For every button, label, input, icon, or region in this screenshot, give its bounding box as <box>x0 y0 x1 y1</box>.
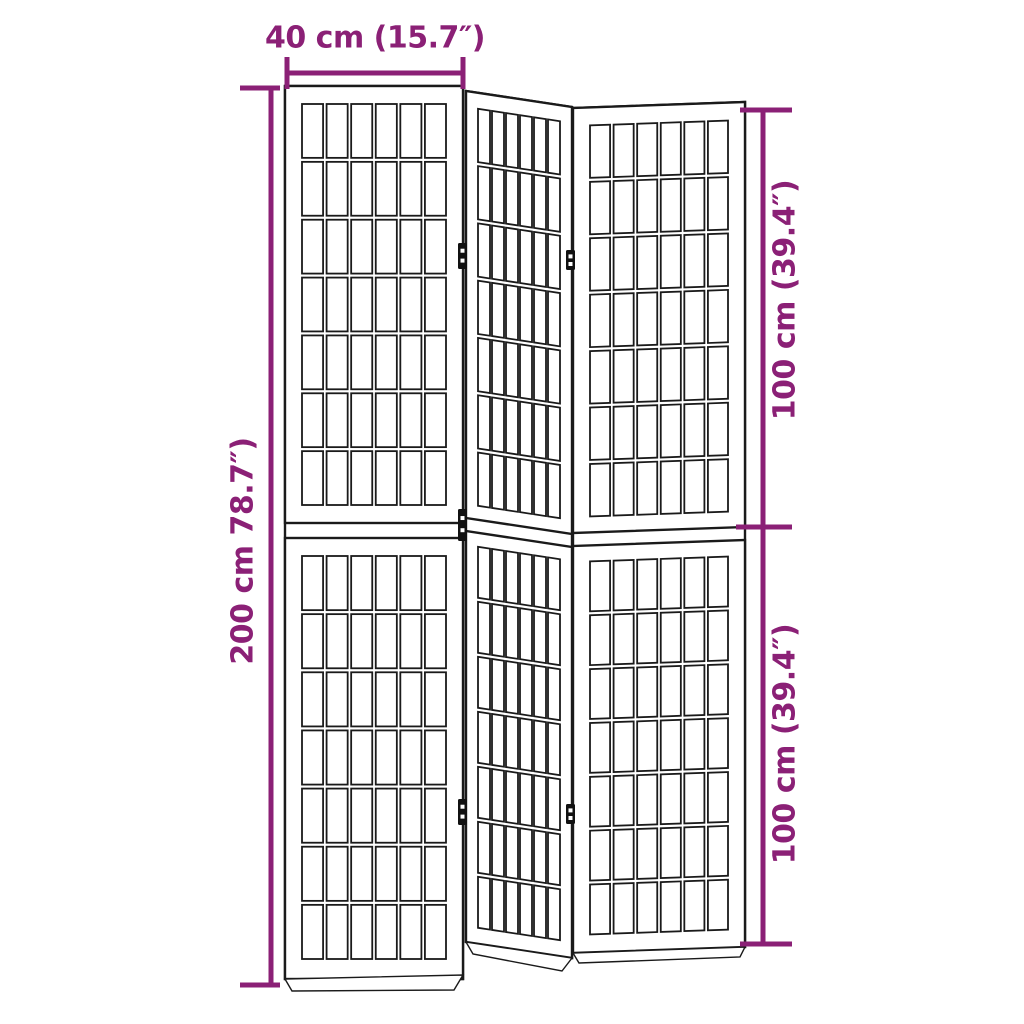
panel-left-lower-frame <box>285 538 463 979</box>
width-dimension-label: 40 cm (15.7″) <box>265 21 485 56</box>
lower-panel-height-dimension-label: 100 cm (39.4″) <box>768 624 803 864</box>
hinge-pin <box>569 808 573 812</box>
panel-right-lower-frame <box>573 540 745 953</box>
room-divider-illustration <box>0 0 1024 1024</box>
hinge-icon <box>566 804 575 824</box>
hinge-body <box>458 799 467 825</box>
hinge-pin <box>461 815 465 819</box>
hinge-pin <box>461 528 465 532</box>
hinge-body <box>458 243 467 269</box>
hinge-icon <box>458 799 467 825</box>
hinge-pin <box>569 262 573 266</box>
hinge-pin <box>569 254 573 258</box>
total-height-dimension-label: 200 cm 78.7″) <box>226 437 261 664</box>
hinge-pin <box>461 516 465 520</box>
panel-right-upper-frame <box>573 102 745 533</box>
panel-left-upper-frame <box>285 86 463 523</box>
hinge-pin <box>461 259 465 263</box>
panel-right <box>573 102 745 953</box>
hinge-pin <box>461 249 465 253</box>
product-dimension-diagram: 40 cm (15.7″) 200 cm 78.7″) 100 cm (39.4… <box>0 0 1024 1024</box>
panel-middle <box>466 91 572 958</box>
panel-middle-upper-frame <box>466 91 572 534</box>
hinge-body <box>566 804 575 824</box>
hinge-icon <box>566 250 575 270</box>
hinge-pin <box>461 805 465 809</box>
hinge-pin <box>569 816 573 820</box>
hinge-icon <box>458 509 467 541</box>
hinge-body <box>458 509 467 541</box>
upper-panel-height-dimension-label: 100 cm (39.4″) <box>768 180 803 420</box>
panel-left <box>285 86 463 991</box>
hinge-body <box>566 250 575 270</box>
panel-middle-lower-frame <box>466 531 572 958</box>
hinge-icon <box>458 243 467 269</box>
